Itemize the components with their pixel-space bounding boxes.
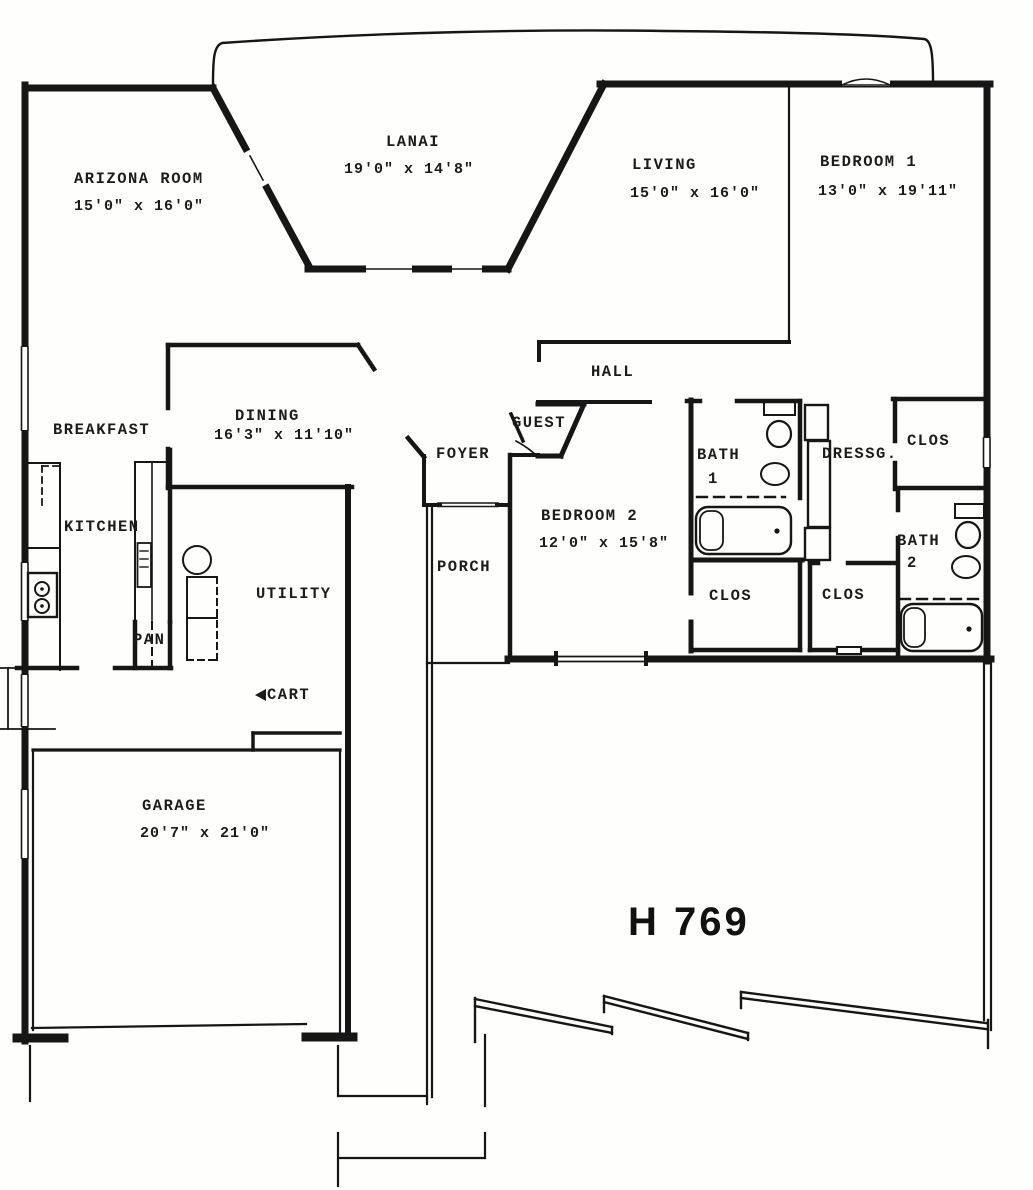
room-dims-bedroom2: 12'0" x 15'8": [539, 535, 669, 552]
room-label-bath2: BATH: [897, 532, 940, 550]
sliding-door-bedroom2: [556, 653, 646, 664]
interior-walls: [17, 342, 985, 750]
room-label-closet-hall-left: CLOS: [709, 587, 752, 605]
window-garage-upper: [21, 675, 30, 726]
room-label-bath1: BATH: [697, 446, 740, 464]
front-door: [438, 501, 498, 510]
refrigerator-icon: [42, 466, 60, 505]
room-label-bedroom1: BEDROOM 1: [820, 153, 917, 171]
plan-id: H 769: [628, 900, 750, 945]
washer-dryer-icon: [187, 577, 217, 660]
room-dims-arizona: 15'0" x 16'0": [74, 198, 204, 215]
room-dims-lanai: 19'0" x 14'8": [344, 161, 474, 178]
room-label-foyer: FOYER: [436, 445, 490, 463]
room-label-lanai: LANAI: [386, 133, 440, 151]
room-dims-dining: 16'3" x 11'10": [214, 427, 354, 444]
window-east-wall: [983, 438, 992, 467]
room-label-dressing: DRESSG.: [822, 445, 898, 463]
room-label-porch: PORCH: [437, 558, 491, 576]
water-heater-icon: [183, 546, 211, 574]
room-label-closet-bedroom1: CLOS: [907, 432, 950, 450]
room-dims-living: 15'0" x 16'0": [630, 185, 760, 202]
room-label-kitchen: KITCHEN: [64, 518, 140, 536]
dressing-shelves: [805, 405, 830, 560]
floorplan-page: ARIZONA ROOM 15'0" x 16'0" LANAI 19'0" x…: [0, 0, 1033, 1190]
toilet-icon-bath2: [955, 504, 984, 548]
room-label-arizona: ARIZONA ROOM: [74, 170, 204, 188]
kitchen-counter-right: [135, 462, 170, 622]
bathtub-icon-bath1: [696, 507, 791, 554]
room-label-guest: GUEST: [512, 414, 566, 432]
toilet-icon-bath1: [764, 402, 795, 447]
room-number-bath1: 1: [708, 470, 719, 488]
kitchen-sink-icon: [138, 543, 152, 587]
room-label-dining: DINING: [235, 407, 300, 425]
outer-wall-feet: [17, 1037, 353, 1038]
room-dims-garage: 20'7" x 21'0": [140, 825, 270, 842]
sink-icon-bath2: [952, 556, 980, 578]
bathtub-icon-bath2: [901, 604, 982, 651]
room-label-cart: CART: [255, 686, 310, 704]
room-label-pantry: PAN: [133, 631, 165, 649]
kitchen-counter-left: [29, 463, 60, 670]
room-label-garage: GARAGE: [142, 797, 207, 815]
window-breakfast: [21, 347, 30, 430]
room-label-living: LIVING: [632, 156, 697, 174]
roof-outline: [213, 30, 933, 85]
sink-icon-bath1: [761, 463, 789, 485]
room-label-utility: UTILITY: [256, 585, 332, 603]
room-dims-bedroom1: 13'0" x 19'11": [818, 183, 958, 200]
stove-icon: [28, 573, 57, 617]
window-garage-lower: [21, 790, 30, 858]
room-label-breakfast: BREAKFAST: [53, 421, 150, 439]
room-label-bedroom2: BEDROOM 2: [541, 507, 638, 525]
patio-fence-steps: [475, 992, 988, 1048]
window-bedroom1-top: [842, 76, 890, 86]
cart-arrow-icon: [255, 689, 266, 701]
closet-sill: [837, 647, 861, 654]
room-label-hall: HALL: [591, 363, 634, 381]
room-label-closet-hall-right: CLOS: [822, 586, 865, 604]
room-number-bath2: 2: [907, 554, 918, 572]
